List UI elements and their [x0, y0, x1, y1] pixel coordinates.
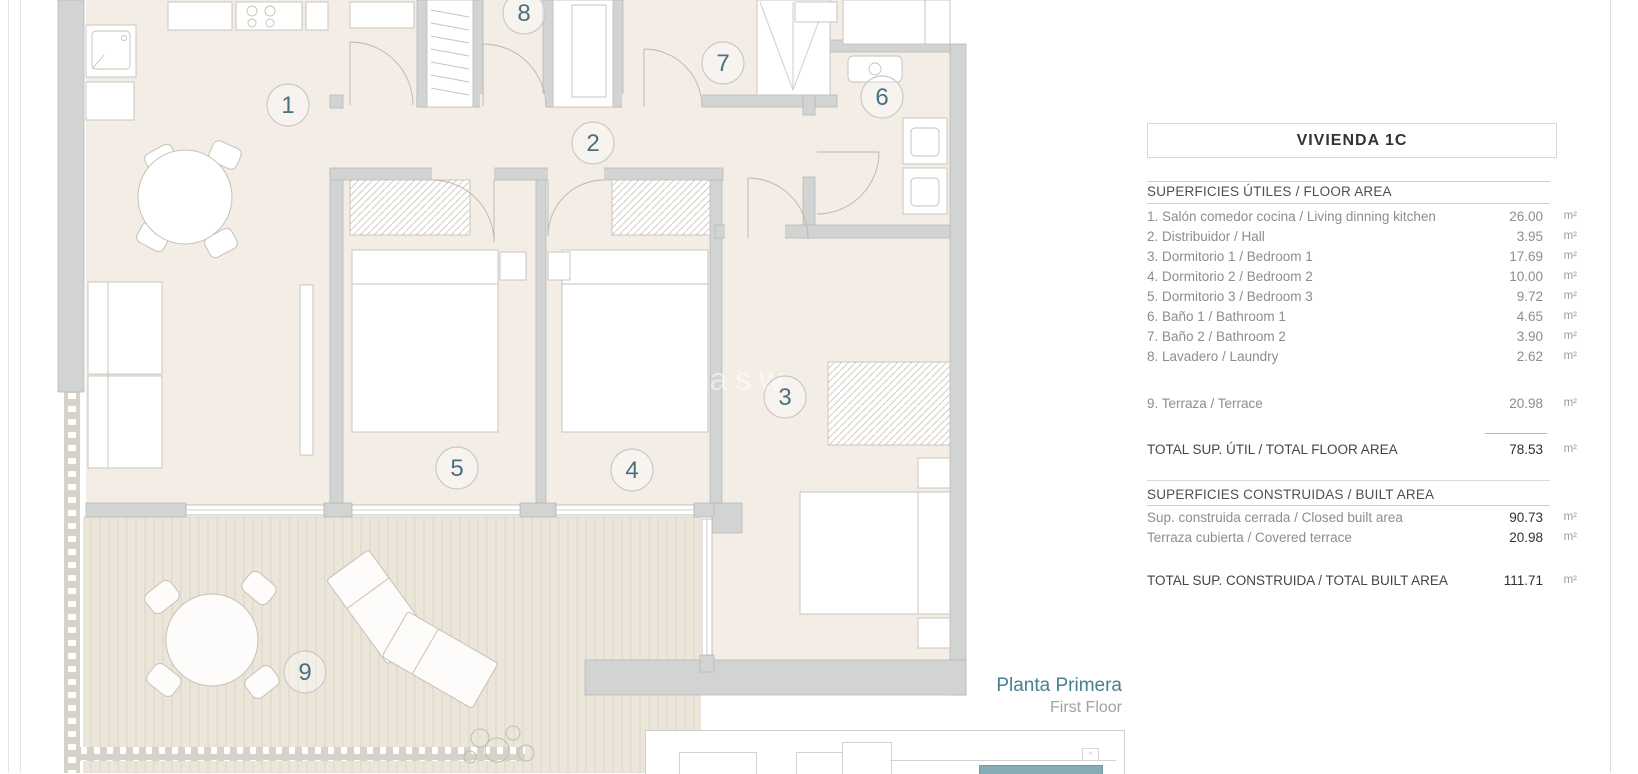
area-row-label: 1. Salón comedor cocina / Living dinning…: [1147, 209, 1491, 224]
total-value: 78.53: [1491, 442, 1543, 457]
area-row-label: 2. Distribuidor / Hall: [1147, 229, 1491, 244]
floor-plan: w.casasw 1 2 3 4 5 6 7 8 9: [0, 0, 980, 773]
nightstand: [548, 252, 570, 280]
wardrobe: [612, 180, 710, 235]
floor-area-rows: 1. Salón comedor cocina / Living dinning…: [1147, 206, 1577, 366]
key-plan-building: [679, 752, 757, 774]
total-value: 111.71: [1491, 573, 1543, 588]
room-marker-1: 1: [267, 84, 309, 126]
area-row-unit: m²: [1543, 310, 1577, 322]
bed: [562, 250, 708, 432]
area-row-label: 3. Dormitorio 1 / Bedroom 1: [1147, 249, 1491, 264]
area-row-unit: m²: [1543, 350, 1577, 362]
wardrobe: [828, 362, 950, 445]
tv-board: [300, 285, 313, 455]
sink: [903, 118, 947, 164]
area-row-label: 9. Terraza / Terrace: [1147, 396, 1491, 411]
room-marker-5: 5: [436, 447, 478, 489]
bed-top: [843, 0, 950, 44]
divider: [1147, 181, 1550, 182]
watermark: w.casasw: [589, 361, 791, 397]
total-row: TOTAL SUP. ÚTIL / TOTAL FLOOR AREA 78.53…: [1147, 438, 1577, 460]
area-row-value: 9.72: [1491, 289, 1543, 304]
area-row-label: Terraza cubierta / Covered terrace: [1147, 530, 1491, 545]
terrace-row-block: 9. Terraza / Terrace 20.98 m²: [1147, 393, 1577, 413]
area-row-unit: m²: [1543, 290, 1577, 302]
floor-name-es: Planta Primera: [822, 674, 1122, 697]
room-marker-9: 9: [284, 651, 326, 693]
total-row: TOTAL SUP. CONSTRUIDA / TOTAL BUILT AREA…: [1147, 569, 1577, 591]
area-row-unit: m²: [1543, 330, 1577, 342]
key-plan-building: [842, 742, 892, 774]
nightstand: [918, 458, 950, 488]
bed: [352, 250, 498, 432]
svg-text:1: 1: [281, 92, 294, 119]
area-row: 4. Dormitorio 2 / Bedroom 2 10.00 m²: [1147, 266, 1577, 286]
area-row-unit: m²: [1543, 210, 1577, 222]
area-row-value: 26.00: [1491, 209, 1543, 224]
built-area-rows: Sup. construida cerrada / Closed built a…: [1147, 507, 1577, 547]
total-unit: m²: [1543, 574, 1577, 586]
svg-text:5: 5: [450, 455, 463, 482]
area-row: 9. Terraza / Terrace 20.98 m²: [1147, 393, 1577, 413]
area-row-unit: m²: [1543, 270, 1577, 282]
area-row-unit: m²: [1543, 511, 1577, 523]
total-rule: [1485, 433, 1547, 434]
area-row-unit: m²: [1543, 397, 1577, 409]
key-plan-marker: ×: [1082, 748, 1099, 761]
area-row: Sup. construida cerrada / Closed built a…: [1147, 507, 1577, 527]
svg-text:9: 9: [298, 659, 311, 686]
room-marker-4: 4: [611, 449, 653, 491]
built-area-total: TOTAL SUP. CONSTRUIDA / TOTAL BUILT AREA…: [1147, 569, 1577, 591]
room-marker-6: 6: [861, 76, 903, 118]
area-row: 8. Lavadero / Laundry 2.62 m²: [1147, 346, 1577, 366]
room-marker-2: 2: [572, 122, 614, 164]
divider: [1147, 203, 1550, 204]
area-row-unit: m²: [1543, 250, 1577, 262]
area-row-label: 5. Dormitorio 3 / Bedroom 3: [1147, 289, 1491, 304]
area-row-label: 6. Baño 1 / Bathroom 1: [1147, 309, 1491, 324]
divider: [1147, 480, 1550, 481]
svg-text:7: 7: [716, 50, 729, 77]
dining-table: [135, 139, 244, 260]
area-row-value: 3.90: [1491, 329, 1543, 344]
svg-text:2: 2: [586, 130, 599, 157]
area-row: 6. Baño 1 / Bathroom 1 4.65 m²: [1147, 306, 1577, 326]
floor-area-total: TOTAL SUP. ÚTIL / TOTAL FLOOR AREA 78.53…: [1147, 438, 1577, 460]
floor-label: Planta Primera First Floor: [822, 674, 1122, 718]
built-area-section-title: SUPERFICIES CONSTRUIDAS / BUILT AREA: [1147, 487, 1577, 502]
area-row: 3. Dormitorio 1 / Bedroom 1 17.69 m²: [1147, 246, 1577, 266]
svg-text:3: 3: [778, 384, 791, 411]
area-row: Terraza cubierta / Covered terrace 20.98…: [1147, 527, 1577, 547]
area-row-label: 7. Baño 2 / Bathroom 2: [1147, 329, 1491, 344]
nightstand: [918, 618, 950, 648]
total-unit: m²: [1543, 443, 1577, 455]
area-row-unit: m²: [1543, 531, 1577, 543]
sheet-border-line: [1610, 0, 1611, 773]
area-row-unit: m²: [1543, 230, 1577, 242]
floor-name-en: First Floor: [822, 697, 1122, 718]
sink: [903, 168, 947, 214]
room-marker-7: 7: [702, 42, 744, 84]
area-row-value: 90.73: [1491, 510, 1543, 525]
room-marker-3: 3: [764, 376, 806, 418]
svg-text:4: 4: [625, 457, 638, 484]
area-row: 1. Salón comedor cocina / Living dinning…: [1147, 206, 1577, 226]
area-row-label: Sup. construida cerrada / Closed built a…: [1147, 510, 1491, 525]
area-row-label: 8. Lavadero / Laundry: [1147, 349, 1491, 364]
unit-title: VIVIENDA 1C: [1297, 132, 1408, 150]
wardrobe: [350, 180, 470, 235]
total-label: TOTAL SUP. CONSTRUIDA / TOTAL BUILT AREA: [1147, 573, 1491, 588]
floor-area-section-title: SUPERFICIES ÚTILES / FLOOR AREA: [1147, 184, 1577, 199]
bed: [800, 492, 950, 614]
area-row-value: 17.69: [1491, 249, 1543, 264]
area-row-value: 3.95: [1491, 229, 1543, 244]
area-row-value: 10.00: [1491, 269, 1543, 284]
svg-text:6: 6: [875, 84, 888, 111]
area-row-value: 20.98: [1491, 396, 1543, 411]
area-row-value: 4.65: [1491, 309, 1543, 324]
total-label: TOTAL SUP. ÚTIL / TOTAL FLOOR AREA: [1147, 442, 1491, 457]
area-row: 5. Dormitorio 3 / Bedroom 3 9.72 m²: [1147, 286, 1577, 306]
terrace-table: [166, 594, 258, 686]
svg-text:8: 8: [517, 0, 530, 27]
area-row-value: 2.62: [1491, 349, 1543, 364]
unit-title-box: VIVIENDA 1C: [1147, 123, 1557, 158]
area-row: 2. Distribuidor / Hall 3.95 m²: [1147, 226, 1577, 246]
area-row: 7. Baño 2 / Bathroom 2 3.90 m²: [1147, 326, 1577, 346]
divider: [1147, 505, 1550, 506]
area-row-value: 20.98: [1491, 530, 1543, 545]
area-row-label: 4. Dormitorio 2 / Bedroom 2: [1147, 269, 1491, 284]
key-plan: ×: [645, 730, 1125, 774]
nightstand: [500, 252, 526, 280]
